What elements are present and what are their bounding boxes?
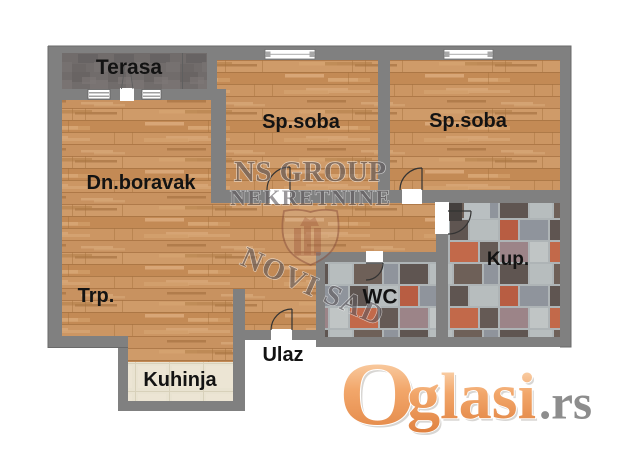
svg-text:.rs: .rs — [539, 375, 592, 430]
svg-text:Sp.soba: Sp.soba — [429, 110, 508, 132]
svg-text:O: O — [339, 345, 416, 444]
svg-text:Trp.: Trp. — [78, 285, 115, 307]
svg-text:Ulaz: Ulaz — [262, 344, 303, 366]
svg-text:WC: WC — [363, 286, 398, 309]
svg-text:Dn.boravak: Dn.boravak — [87, 172, 197, 194]
svg-text:Kuhinja: Kuhinja — [143, 369, 217, 391]
svg-text:NS GROUP: NS GROUP — [234, 156, 386, 188]
svg-text:Kup.: Kup. — [487, 249, 529, 270]
svg-text:glasi: glasi — [407, 360, 536, 433]
svg-text:Sp.soba: Sp.soba — [262, 111, 341, 133]
svg-text:Terasa: Terasa — [96, 56, 162, 79]
svg-text:NEKRETNINE: NEKRETNINE — [230, 185, 390, 210]
